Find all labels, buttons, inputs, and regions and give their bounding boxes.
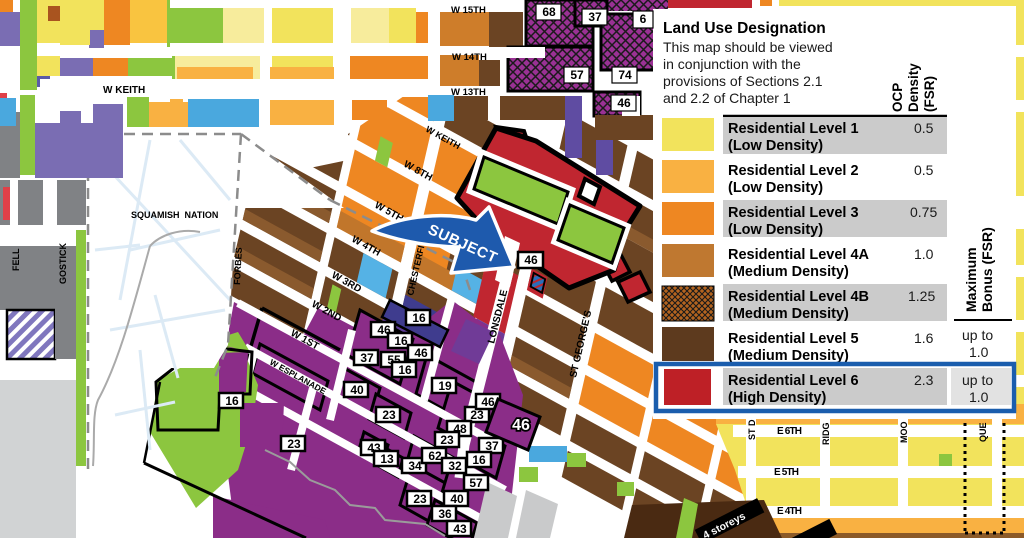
svg-text:W 13TH: W 13TH bbox=[451, 87, 486, 98]
svg-text:Residential Level 5: Residential Level 5 bbox=[728, 331, 859, 347]
svg-text:16: 16 bbox=[394, 334, 408, 348]
svg-text:and 2.2 of Chapter 1: and 2.2 of Chapter 1 bbox=[663, 90, 791, 106]
svg-text:GOSTICK: GOSTICK bbox=[58, 242, 68, 284]
svg-text:Land Use Designation: Land Use Designation bbox=[663, 20, 826, 37]
svg-text:0.5: 0.5 bbox=[914, 162, 934, 178]
svg-text:(FSR): (FSR) bbox=[922, 76, 937, 112]
svg-text:(High Density): (High Density) bbox=[728, 390, 826, 406]
svg-text:46: 46 bbox=[414, 346, 428, 360]
svg-text:E 4TH: E 4TH bbox=[777, 506, 802, 517]
svg-text:13: 13 bbox=[380, 452, 394, 466]
svg-text:37: 37 bbox=[360, 351, 374, 365]
svg-text:Residential Level 6: Residential Level 6 bbox=[728, 373, 859, 389]
svg-text:E 6TH: E 6TH bbox=[777, 426, 802, 437]
svg-text:2.3: 2.3 bbox=[914, 372, 934, 388]
svg-text:Residential Level 1: Residential Level 1 bbox=[728, 121, 859, 137]
svg-text:up to: up to bbox=[962, 327, 993, 343]
svg-text:40: 40 bbox=[450, 492, 464, 506]
svg-text:37: 37 bbox=[588, 10, 602, 24]
svg-text:46: 46 bbox=[512, 417, 530, 434]
svg-text:0.75: 0.75 bbox=[910, 204, 937, 220]
svg-text:Residential Level 4A: Residential Level 4A bbox=[728, 247, 870, 263]
svg-text:23: 23 bbox=[382, 408, 396, 422]
svg-text:19: 19 bbox=[438, 379, 452, 393]
svg-text:in conjunction with the: in conjunction with the bbox=[663, 56, 801, 72]
svg-text:(Low Density): (Low Density) bbox=[728, 222, 823, 238]
svg-text:23: 23 bbox=[287, 437, 301, 451]
svg-text:16: 16 bbox=[225, 394, 239, 408]
svg-text:up to: up to bbox=[962, 372, 993, 388]
svg-text:34: 34 bbox=[408, 459, 422, 473]
svg-text:W 15TH: W 15TH bbox=[451, 5, 486, 16]
svg-text:57: 57 bbox=[469, 476, 483, 490]
svg-text:46: 46 bbox=[617, 96, 631, 110]
svg-text:1.0: 1.0 bbox=[914, 246, 934, 262]
svg-text:SQUAMISH NATION: SQUAMISH NATION bbox=[131, 210, 218, 220]
svg-text:1.6: 1.6 bbox=[914, 330, 934, 346]
svg-text:Bonus (FSR): Bonus (FSR) bbox=[979, 227, 995, 312]
svg-text:(Medium Density): (Medium Density) bbox=[728, 348, 849, 364]
svg-text:Residential Level 4B: Residential Level 4B bbox=[728, 289, 869, 305]
svg-text:1.0: 1.0 bbox=[969, 344, 989, 360]
svg-text:Density: Density bbox=[906, 63, 921, 112]
svg-text:(Medium Density): (Medium Density) bbox=[728, 264, 849, 280]
svg-text:QUE: QUE bbox=[978, 422, 988, 442]
svg-text:(Low Density): (Low Density) bbox=[728, 180, 823, 196]
svg-text:(Medium Density): (Medium Density) bbox=[728, 306, 849, 322]
svg-text:16: 16 bbox=[472, 453, 486, 467]
svg-text:16: 16 bbox=[398, 363, 412, 377]
svg-text:Maximum: Maximum bbox=[963, 247, 979, 312]
svg-text:32: 32 bbox=[448, 459, 462, 473]
svg-text:Residential Level 3: Residential Level 3 bbox=[728, 205, 859, 221]
svg-text:Residential Level 2: Residential Level 2 bbox=[728, 163, 859, 179]
svg-text:W 14TH: W 14TH bbox=[452, 52, 487, 63]
svg-text:MOO: MOO bbox=[899, 422, 909, 444]
svg-text:6: 6 bbox=[640, 12, 647, 26]
svg-text:0.5: 0.5 bbox=[914, 120, 934, 136]
svg-text:ST D: ST D bbox=[747, 419, 757, 440]
svg-text:provisions of Sections 2.1: provisions of Sections 2.1 bbox=[663, 73, 823, 89]
svg-text:W KEITH: W KEITH bbox=[103, 85, 145, 96]
svg-text:RIDG: RIDG bbox=[821, 423, 831, 446]
svg-text:74: 74 bbox=[618, 68, 632, 82]
svg-text:1.25: 1.25 bbox=[908, 288, 935, 304]
svg-text:E 5TH: E 5TH bbox=[774, 467, 799, 478]
svg-text:OCP: OCP bbox=[890, 83, 905, 112]
svg-text:FORBES: FORBES bbox=[232, 247, 244, 285]
svg-text:57: 57 bbox=[570, 68, 584, 82]
svg-text:1.0: 1.0 bbox=[969, 389, 989, 405]
svg-text:68: 68 bbox=[542, 5, 556, 19]
svg-text:40: 40 bbox=[350, 383, 364, 397]
svg-text:This map should be viewed: This map should be viewed bbox=[663, 39, 833, 55]
svg-text:43: 43 bbox=[453, 522, 467, 536]
svg-text:46: 46 bbox=[481, 395, 495, 409]
svg-text:36: 36 bbox=[438, 507, 452, 521]
svg-text:23: 23 bbox=[440, 433, 454, 447]
svg-text:FELL: FELL bbox=[11, 248, 21, 271]
svg-text:46: 46 bbox=[524, 253, 538, 267]
svg-text:16: 16 bbox=[412, 311, 426, 325]
svg-text:62: 62 bbox=[428, 449, 442, 463]
svg-text:(Low Density): (Low Density) bbox=[728, 138, 823, 154]
svg-text:23: 23 bbox=[413, 492, 427, 506]
